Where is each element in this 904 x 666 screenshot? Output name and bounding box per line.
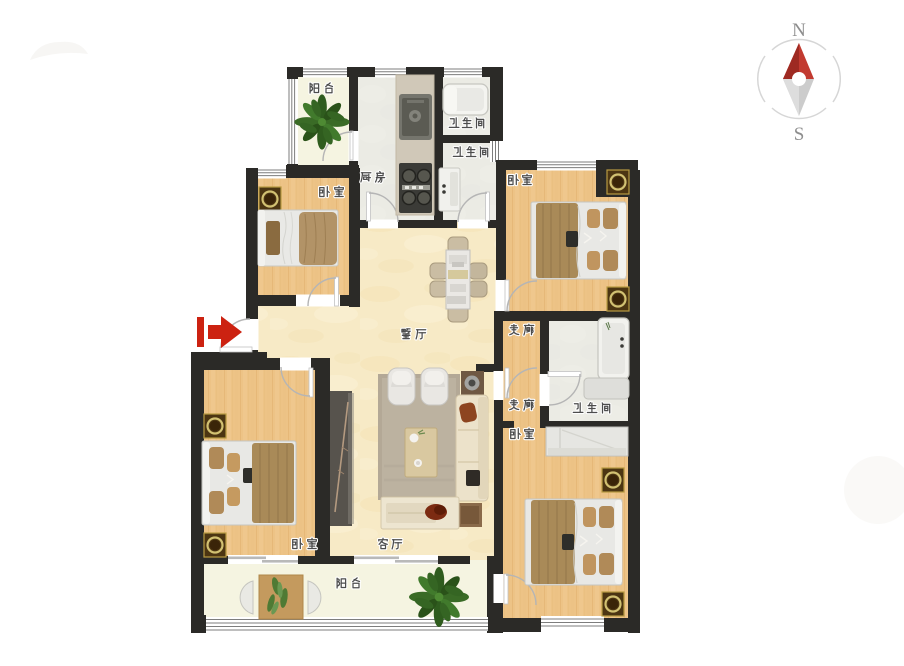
svg-text:S: S — [794, 124, 805, 145]
svg-text:N: N — [792, 20, 806, 41]
